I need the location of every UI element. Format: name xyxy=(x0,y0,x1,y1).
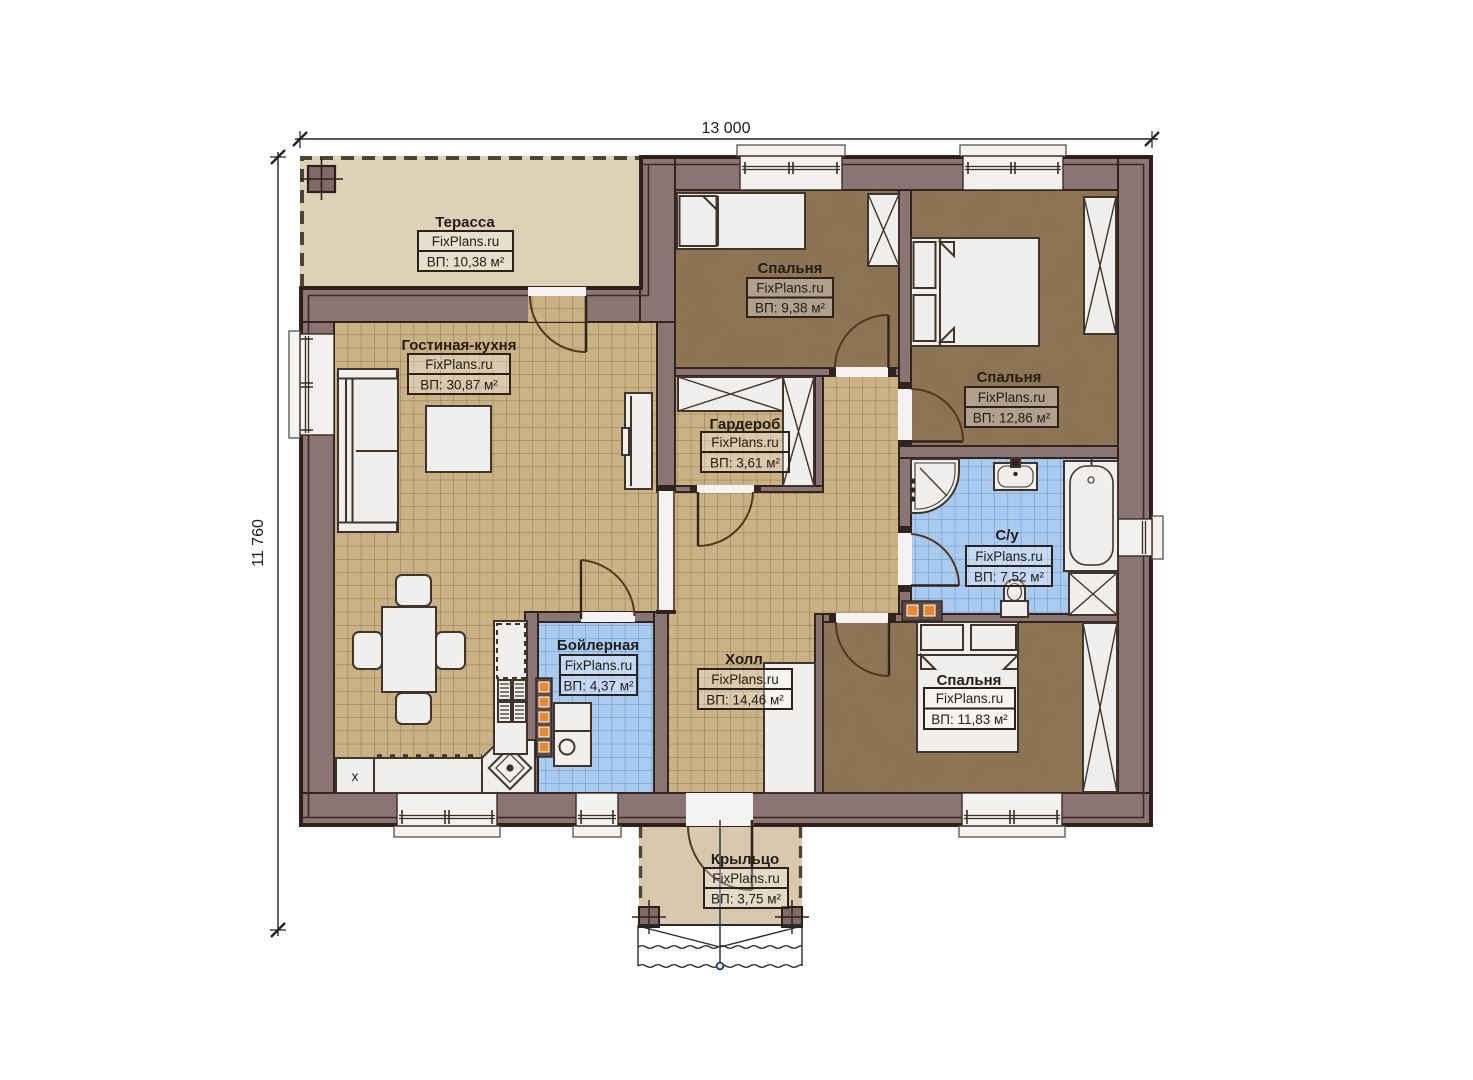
svg-text:ВП: 11,83 м²: ВП: 11,83 м² xyxy=(931,712,1008,727)
svg-text:Гостиная-кухня: Гостиная-кухня xyxy=(402,337,517,354)
svg-text:FixPlans.ru: FixPlans.ru xyxy=(978,390,1046,405)
svg-text:FixPlans.ru: FixPlans.ru xyxy=(425,357,493,372)
svg-text:FixPlans.ru: FixPlans.ru xyxy=(712,871,780,886)
svg-text:x: x xyxy=(352,769,359,784)
svg-text:FixPlans.ru: FixPlans.ru xyxy=(936,691,1004,706)
svg-text:Спальня: Спальня xyxy=(758,260,823,277)
svg-text:FixPlans.ru: FixPlans.ru xyxy=(975,549,1043,564)
svg-text:Крыльцо: Крыльцо xyxy=(711,851,779,868)
svg-text:FixPlans.ru: FixPlans.ru xyxy=(711,672,779,687)
svg-text:11 760: 11 760 xyxy=(250,519,267,567)
svg-text:FixPlans.ru: FixPlans.ru xyxy=(432,234,500,249)
svg-text:ВП: 3,61 м²: ВП: 3,61 м² xyxy=(710,456,781,471)
svg-text:FixPlans.ru: FixPlans.ru xyxy=(565,658,633,673)
svg-text:ВП: 10,38 м²: ВП: 10,38 м² xyxy=(427,255,505,270)
svg-text:Бойлерная: Бойлерная xyxy=(557,637,639,654)
svg-text:ВП: 12,86 м²: ВП: 12,86 м² xyxy=(973,411,1051,426)
svg-text:ВП: 4,37 м²: ВП: 4,37 м² xyxy=(563,679,634,694)
svg-text:ВП: 30,87 м²: ВП: 30,87 м² xyxy=(420,378,498,393)
svg-text:Холл: Холл xyxy=(725,651,763,668)
svg-text:13 000: 13 000 xyxy=(702,120,751,137)
svg-text:Спальня: Спальня xyxy=(937,672,1002,689)
svg-text:ВП: 7,52 м²: ВП: 7,52 м² xyxy=(974,570,1045,585)
svg-text:ВП: 3,75 м²: ВП: 3,75 м² xyxy=(711,892,782,907)
svg-text:Спальня: Спальня xyxy=(977,369,1042,386)
svg-text:Терасса: Терасса xyxy=(435,214,495,231)
svg-text:С/у: С/у xyxy=(995,527,1019,544)
svg-text:FixPlans.ru: FixPlans.ru xyxy=(711,435,779,450)
svg-text:ВП: 14,46 м²: ВП: 14,46 м² xyxy=(706,693,784,708)
svg-text:FixPlans.ru: FixPlans.ru xyxy=(756,281,824,296)
svg-text:ВП: 9,38 м²: ВП: 9,38 м² xyxy=(755,301,826,316)
svg-text:Гардероб: Гардероб xyxy=(710,416,781,433)
